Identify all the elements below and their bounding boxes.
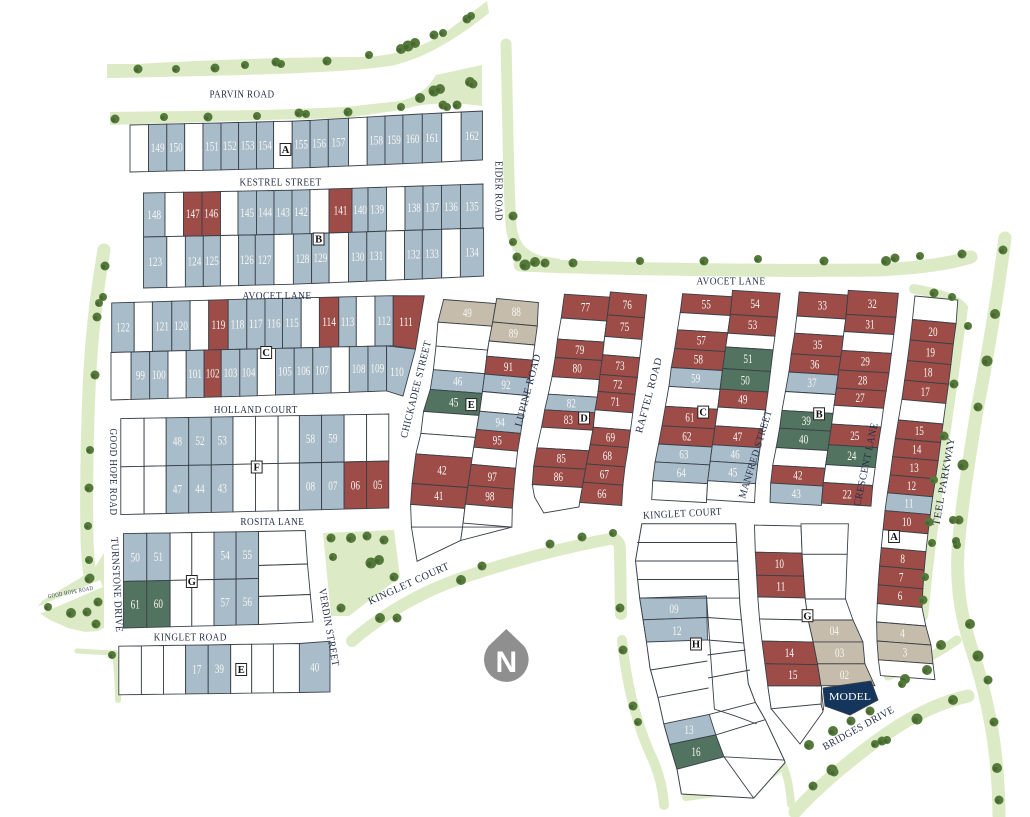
svg-text:151: 151	[205, 139, 219, 154]
svg-text:ROSITA LANE: ROSITA LANE	[240, 517, 304, 528]
svg-text:102: 102	[206, 366, 220, 381]
svg-text:24: 24	[847, 448, 857, 463]
svg-text:117: 117	[249, 316, 263, 331]
svg-text:91: 91	[504, 359, 513, 374]
svg-text:72: 72	[613, 376, 622, 391]
svg-text:31: 31	[865, 316, 874, 331]
svg-text:139: 139	[370, 201, 384, 216]
svg-text:108: 108	[352, 361, 366, 376]
svg-text:G: G	[188, 577, 196, 588]
svg-text:H: H	[692, 640, 700, 651]
svg-text:59: 59	[691, 370, 700, 385]
svg-text:40: 40	[310, 659, 319, 674]
svg-text:142: 142	[294, 204, 308, 219]
svg-text:77: 77	[581, 300, 591, 315]
svg-text:126: 126	[240, 252, 254, 267]
svg-text:138: 138	[407, 200, 421, 215]
svg-text:6: 6	[898, 588, 903, 603]
svg-text:E: E	[238, 665, 245, 676]
svg-text:101: 101	[188, 366, 202, 381]
svg-text:141: 141	[334, 203, 348, 218]
svg-text:144: 144	[258, 205, 272, 220]
svg-text:KINGLET ROAD: KINGLET ROAD	[154, 633, 227, 644]
svg-text:37: 37	[807, 375, 817, 390]
svg-text:G: G	[803, 611, 811, 622]
svg-text:89: 89	[509, 326, 518, 341]
svg-text:88: 88	[512, 304, 521, 319]
svg-text:46: 46	[453, 374, 463, 389]
svg-text:41: 41	[434, 488, 443, 503]
svg-text:63: 63	[679, 446, 688, 461]
svg-text:49: 49	[463, 305, 472, 320]
svg-text:42: 42	[793, 468, 802, 483]
svg-text:111: 111	[399, 314, 413, 329]
svg-text:94: 94	[496, 414, 506, 429]
svg-text:49: 49	[738, 392, 747, 407]
svg-text:60: 60	[154, 596, 163, 611]
svg-text:A: A	[890, 532, 898, 543]
svg-text:PARVIN ROAD: PARVIN ROAD	[210, 90, 275, 101]
svg-text:B: B	[816, 409, 823, 420]
svg-text:47: 47	[173, 481, 183, 496]
svg-text:53: 53	[748, 317, 757, 332]
svg-text:82: 82	[567, 396, 576, 411]
svg-text:12: 12	[907, 478, 916, 493]
svg-text:156: 156	[312, 136, 326, 151]
svg-text:162: 162	[465, 128, 479, 143]
svg-text:68: 68	[603, 448, 612, 463]
svg-text:131: 131	[369, 248, 383, 263]
svg-text:120: 120	[174, 318, 188, 333]
svg-text:3: 3	[903, 644, 908, 659]
svg-text:07: 07	[328, 478, 338, 493]
svg-text:147: 147	[186, 206, 200, 221]
svg-text:59: 59	[328, 431, 337, 446]
svg-text:136: 136	[444, 199, 458, 214]
svg-text:134: 134	[465, 245, 479, 260]
svg-text:98: 98	[485, 489, 494, 504]
svg-text:112: 112	[377, 313, 391, 328]
svg-text:55: 55	[243, 547, 252, 562]
svg-text:18: 18	[923, 364, 932, 379]
svg-text:57: 57	[221, 594, 231, 609]
svg-text:54: 54	[751, 296, 761, 311]
svg-text:58: 58	[694, 352, 703, 367]
svg-text:51: 51	[154, 549, 163, 564]
svg-text:80: 80	[573, 361, 582, 376]
svg-text:124: 124	[188, 253, 202, 268]
svg-text:15: 15	[915, 423, 924, 438]
svg-text:130: 130	[351, 249, 365, 264]
svg-text:123: 123	[148, 254, 162, 269]
svg-text:48: 48	[173, 434, 182, 449]
svg-text:153: 153	[241, 138, 255, 153]
svg-text:45: 45	[728, 464, 737, 479]
svg-text:54: 54	[221, 548, 231, 563]
svg-text:53: 53	[218, 433, 227, 448]
svg-text:113: 113	[341, 314, 355, 329]
svg-text:62: 62	[682, 428, 691, 443]
svg-text:50: 50	[131, 549, 140, 564]
svg-text:MODEL: MODEL	[829, 691, 871, 703]
svg-text:152: 152	[223, 138, 237, 153]
svg-text:122: 122	[116, 319, 130, 334]
svg-text:121: 121	[155, 318, 169, 333]
svg-text:150: 150	[169, 139, 183, 154]
svg-text:AVOCET LANE: AVOCET LANE	[243, 291, 312, 302]
svg-text:83: 83	[564, 412, 573, 427]
svg-text:13: 13	[910, 460, 919, 475]
svg-text:115: 115	[285, 315, 299, 330]
svg-text:10: 10	[902, 514, 911, 529]
svg-text:F: F	[253, 463, 259, 474]
svg-text:C: C	[699, 408, 707, 419]
svg-text:128: 128	[296, 251, 310, 266]
svg-text:57: 57	[697, 333, 707, 348]
svg-text:47: 47	[733, 429, 743, 444]
svg-text:40: 40	[799, 431, 808, 446]
svg-text:33: 33	[818, 298, 827, 313]
svg-text:39: 39	[802, 413, 811, 428]
svg-text:32: 32	[868, 296, 877, 311]
svg-text:15: 15	[788, 667, 797, 682]
svg-text:161: 161	[425, 130, 439, 145]
svg-text:17: 17	[921, 384, 931, 399]
svg-text:132: 132	[407, 247, 421, 262]
svg-text:148: 148	[147, 207, 161, 222]
svg-text:B: B	[315, 235, 322, 246]
svg-text:110: 110	[390, 364, 404, 379]
svg-text:146: 146	[204, 206, 218, 221]
svg-text:149: 149	[151, 140, 165, 155]
svg-text:35: 35	[813, 337, 822, 352]
svg-text:143: 143	[276, 204, 290, 219]
svg-text:03: 03	[835, 645, 844, 660]
svg-text:45: 45	[449, 394, 458, 409]
svg-text:71: 71	[611, 394, 620, 409]
svg-text:133: 133	[425, 246, 439, 261]
svg-text:8: 8	[900, 551, 905, 566]
svg-text:GOOD HOPE ROAD: GOOD HOPE ROAD	[107, 429, 118, 516]
svg-text:107: 107	[315, 362, 329, 377]
svg-text:46: 46	[731, 446, 741, 461]
svg-text:E: E	[468, 400, 475, 411]
svg-text:114: 114	[322, 314, 336, 329]
svg-text:39: 39	[215, 661, 224, 676]
svg-text:22: 22	[843, 486, 852, 501]
svg-text:116: 116	[267, 316, 281, 331]
svg-text:61: 61	[131, 596, 140, 611]
svg-text:EIDER ROAD: EIDER ROAD	[493, 161, 504, 221]
svg-text:66: 66	[597, 486, 607, 501]
svg-text:12: 12	[672, 623, 681, 638]
svg-text:160: 160	[406, 131, 420, 146]
svg-text:05: 05	[373, 477, 382, 492]
svg-text:25: 25	[850, 428, 859, 443]
svg-text:04: 04	[830, 623, 840, 638]
svg-text:137: 137	[425, 200, 439, 215]
svg-text:135: 135	[465, 198, 479, 213]
svg-text:N: N	[495, 646, 517, 679]
svg-text:155: 155	[294, 136, 308, 151]
svg-text:29: 29	[861, 354, 870, 369]
svg-text:36: 36	[810, 356, 820, 371]
svg-text:140: 140	[353, 202, 367, 217]
svg-text:11: 11	[904, 496, 913, 511]
svg-text:14: 14	[912, 442, 922, 457]
svg-text:85: 85	[557, 451, 566, 466]
svg-text:145: 145	[240, 205, 254, 220]
svg-text:KESTREL STREET: KESTREL STREET	[240, 178, 322, 189]
svg-text:AVOCET LANE: AVOCET LANE	[697, 277, 766, 288]
svg-text:14: 14	[785, 645, 795, 660]
svg-text:27: 27	[856, 390, 866, 405]
svg-text:19: 19	[926, 344, 935, 359]
svg-text:4: 4	[900, 626, 905, 641]
svg-text:97: 97	[488, 469, 498, 484]
svg-text:20: 20	[928, 324, 937, 339]
svg-text:73: 73	[615, 358, 624, 373]
svg-text:106: 106	[297, 363, 311, 378]
svg-text:100: 100	[152, 367, 166, 382]
svg-text:79: 79	[575, 342, 584, 357]
svg-text:119: 119	[212, 317, 226, 332]
svg-text:99: 99	[136, 367, 145, 382]
svg-text:92: 92	[501, 377, 510, 392]
svg-text:55: 55	[702, 297, 711, 312]
svg-text:105: 105	[278, 363, 292, 378]
svg-text:103: 103	[224, 365, 238, 380]
svg-text:09: 09	[669, 601, 678, 616]
svg-text:06: 06	[351, 477, 361, 492]
svg-text:158: 158	[369, 133, 383, 148]
svg-text:95: 95	[493, 432, 502, 447]
svg-text:28: 28	[858, 373, 867, 388]
svg-text:51: 51	[743, 351, 752, 366]
svg-text:02: 02	[840, 667, 849, 682]
svg-text:44: 44	[195, 481, 205, 496]
svg-text:16: 16	[691, 744, 701, 759]
svg-text:61: 61	[685, 410, 694, 425]
svg-text:69: 69	[606, 429, 615, 444]
svg-text:10: 10	[775, 556, 784, 571]
svg-text:52: 52	[195, 433, 204, 448]
svg-text:D: D	[580, 414, 588, 425]
svg-text:67: 67	[600, 467, 610, 482]
svg-text:42: 42	[437, 463, 446, 478]
svg-text:157: 157	[332, 135, 346, 150]
svg-text:129: 129	[314, 250, 328, 265]
svg-text:118: 118	[231, 316, 245, 331]
svg-text:58: 58	[306, 431, 315, 446]
svg-text:17: 17	[192, 661, 202, 676]
svg-text:08: 08	[306, 478, 315, 493]
svg-text:64: 64	[677, 465, 687, 480]
svg-text:154: 154	[258, 137, 272, 152]
svg-text:127: 127	[258, 252, 272, 267]
svg-text:50: 50	[741, 372, 750, 387]
svg-text:125: 125	[205, 253, 219, 268]
svg-text:159: 159	[387, 132, 401, 147]
svg-text:109: 109	[370, 361, 384, 376]
svg-text:43: 43	[792, 486, 801, 501]
svg-text:C: C	[262, 348, 270, 359]
svg-text:75: 75	[620, 319, 629, 334]
svg-text:HOLLAND COURT: HOLLAND COURT	[214, 405, 298, 416]
svg-text:43: 43	[218, 480, 227, 495]
svg-text:11: 11	[776, 579, 785, 594]
svg-text:13: 13	[684, 722, 693, 737]
svg-text:7: 7	[899, 569, 904, 584]
svg-text:A: A	[282, 145, 290, 156]
svg-text:76: 76	[623, 297, 633, 312]
svg-text:104: 104	[242, 365, 256, 380]
svg-text:56: 56	[243, 594, 253, 609]
svg-text:86: 86	[554, 469, 564, 484]
